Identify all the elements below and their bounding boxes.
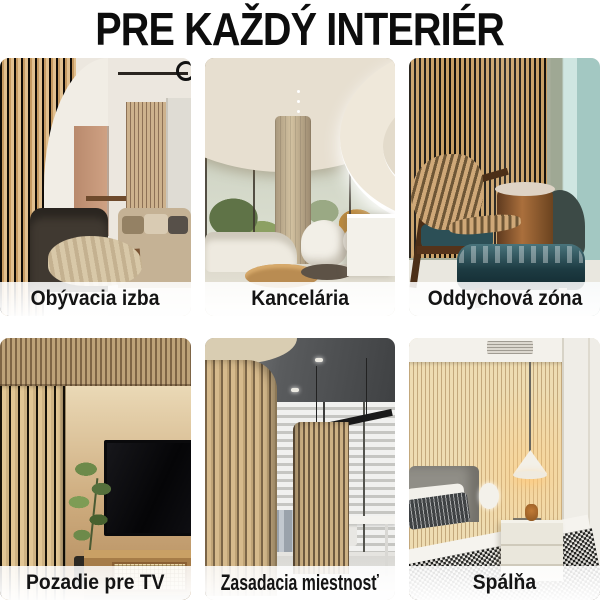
tile-grid: Obývacia izba (0, 58, 600, 600)
tile-meeting-room: Zasadacia miestnosť (205, 338, 396, 600)
wood-slat-panel (293, 422, 349, 574)
spot-light (297, 90, 300, 93)
lounge-chair (301, 220, 347, 266)
ribbed-wood-beam (0, 338, 191, 386)
pillow (144, 214, 168, 234)
recessed-light (315, 358, 323, 362)
tile-label-bar: Kancelária (205, 282, 396, 316)
tile-label: Oddychová zóna (427, 287, 582, 311)
tile-tv-background: Pozadie pre TV (0, 338, 191, 600)
pillow (168, 216, 188, 234)
tile-label-bar: Oddychová zóna (409, 282, 600, 316)
tile-label-bar: Spálňa (409, 566, 600, 600)
relax-zone-photo (409, 58, 600, 316)
tv-wall-photo (0, 338, 191, 600)
header: PRE KAŽDÝ INTERIÉR (0, 0, 600, 58)
pendant-wire (366, 358, 367, 418)
orange-vase (525, 504, 538, 521)
living-room-photo (0, 58, 191, 316)
tile-label: Obývacia izba (31, 287, 160, 311)
tile-bedroom: Spálňa (409, 338, 600, 600)
curved-slat-column (205, 360, 277, 596)
table-top (495, 182, 555, 196)
wall-clock (176, 61, 191, 81)
drawer-line (501, 544, 563, 546)
tile-relax-zone: Oddychová zóna (409, 58, 600, 316)
office-photo (205, 58, 396, 316)
bedroom-photo (409, 338, 600, 600)
glass-frame (363, 402, 365, 552)
ac-vent (487, 341, 533, 354)
tile-label-bar: Obývacia izba (0, 282, 191, 316)
page-title: PRE KAŽDÝ INTERIÉR (96, 2, 505, 56)
pendant-wire (316, 366, 317, 424)
recessed-light (291, 388, 299, 392)
meeting-room-photo (205, 338, 396, 600)
ottoman-sheen (459, 246, 583, 263)
spot-light (297, 110, 300, 113)
tile-office: Kancelária (205, 58, 396, 316)
tile-living-room: Obývacia izba (0, 58, 191, 316)
tile-label: Pozadie pre TV (26, 571, 165, 595)
tile-label: Zasadacia miestnosť (221, 570, 379, 596)
spot-light (297, 100, 300, 103)
tile-label-bar: Zasadacia miestnosť (205, 566, 396, 600)
pillow (122, 216, 144, 234)
tile-label: Kancelária (251, 287, 349, 311)
interior-promo-collage: PRE KAŽDÝ INTERIÉR (0, 0, 600, 600)
tile-label: Spálňa (473, 571, 536, 595)
reception-counter (347, 214, 395, 276)
coffee-table (301, 264, 353, 280)
tile-label-bar: Pozadie pre TV (0, 566, 191, 600)
